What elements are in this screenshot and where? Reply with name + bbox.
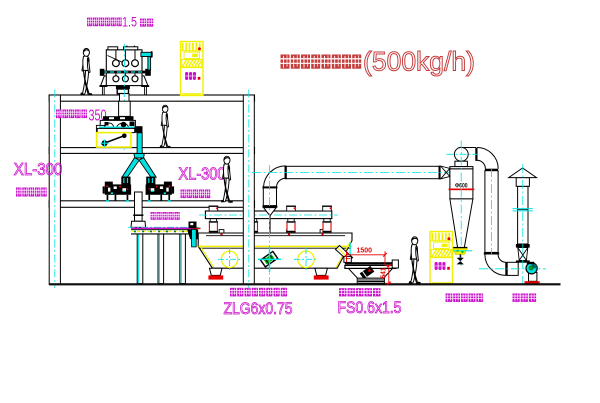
svg-text:XL-300: XL-300 — [14, 159, 63, 179]
svg-text:1.5: 1.5 — [122, 14, 137, 29]
svg-text:(500kg/h): (500kg/h) — [363, 47, 475, 77]
svg-text:541: 541 — [379, 268, 388, 279]
svg-text:ZLG6x0.75: ZLG6x0.75 — [224, 299, 293, 318]
svg-text:1500: 1500 — [357, 246, 373, 255]
svg-text:FS0.6x1.5: FS0.6x1.5 — [338, 298, 402, 317]
svg-text:XL-300: XL-300 — [179, 164, 226, 184]
